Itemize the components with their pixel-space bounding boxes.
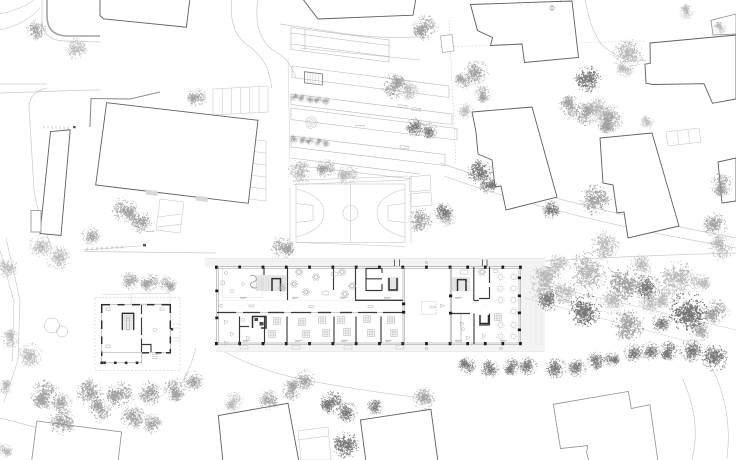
svg-text:Schulgarten: Schulgarten <box>355 124 365 127</box>
